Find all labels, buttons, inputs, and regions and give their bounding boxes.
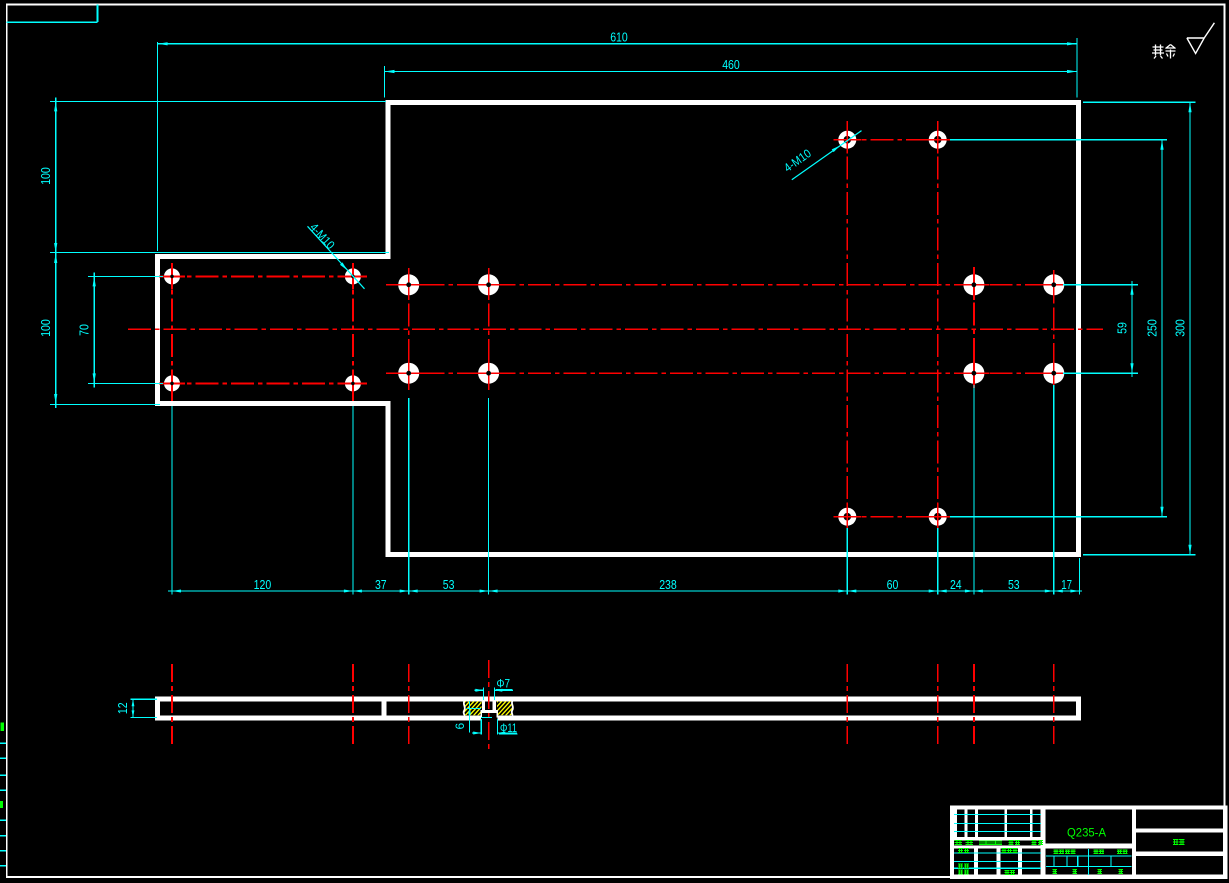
svg-text:12: 12 — [115, 702, 130, 714]
svg-text:460: 460 — [722, 57, 740, 72]
svg-text:24: 24 — [950, 577, 962, 592]
svg-text:120: 120 — [254, 577, 272, 592]
svg-text:6: 6 — [453, 723, 467, 730]
svg-text:610: 610 — [610, 30, 628, 45]
svg-text:100: 100 — [38, 319, 53, 337]
svg-text:17: 17 — [1061, 577, 1072, 592]
svg-text:59: 59 — [1115, 322, 1130, 334]
svg-text:60: 60 — [887, 577, 899, 592]
svg-text:100: 100 — [38, 167, 53, 185]
svg-text:238: 238 — [659, 577, 677, 592]
svg-text:250: 250 — [1145, 319, 1160, 337]
svg-text:37: 37 — [375, 577, 387, 592]
svg-text:70: 70 — [77, 324, 92, 336]
svg-text:Q235-A: Q235-A — [1067, 827, 1106, 839]
svg-text:300: 300 — [1173, 319, 1188, 337]
svg-text:Φ11: Φ11 — [500, 721, 517, 735]
svg-text:53: 53 — [1008, 577, 1020, 592]
svg-text:53: 53 — [443, 577, 455, 592]
svg-text:Φ7: Φ7 — [497, 676, 511, 690]
